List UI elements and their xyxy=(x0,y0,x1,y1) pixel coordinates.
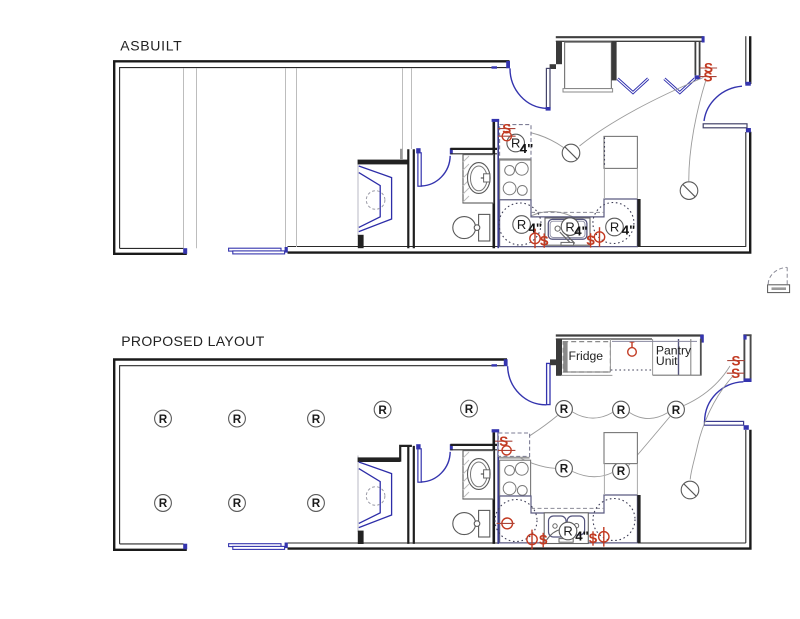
svg-text:ASBUILT: ASBUILT xyxy=(120,37,182,53)
svg-text:Unit: Unit xyxy=(656,354,678,368)
svg-text:4": 4" xyxy=(575,529,589,544)
svg-text:Fridge: Fridge xyxy=(569,349,604,363)
svg-text:4": 4" xyxy=(622,223,636,238)
svg-text:PROPOSED LAYOUT: PROPOSED LAYOUT xyxy=(121,333,265,349)
svg-text:4": 4" xyxy=(520,141,534,156)
